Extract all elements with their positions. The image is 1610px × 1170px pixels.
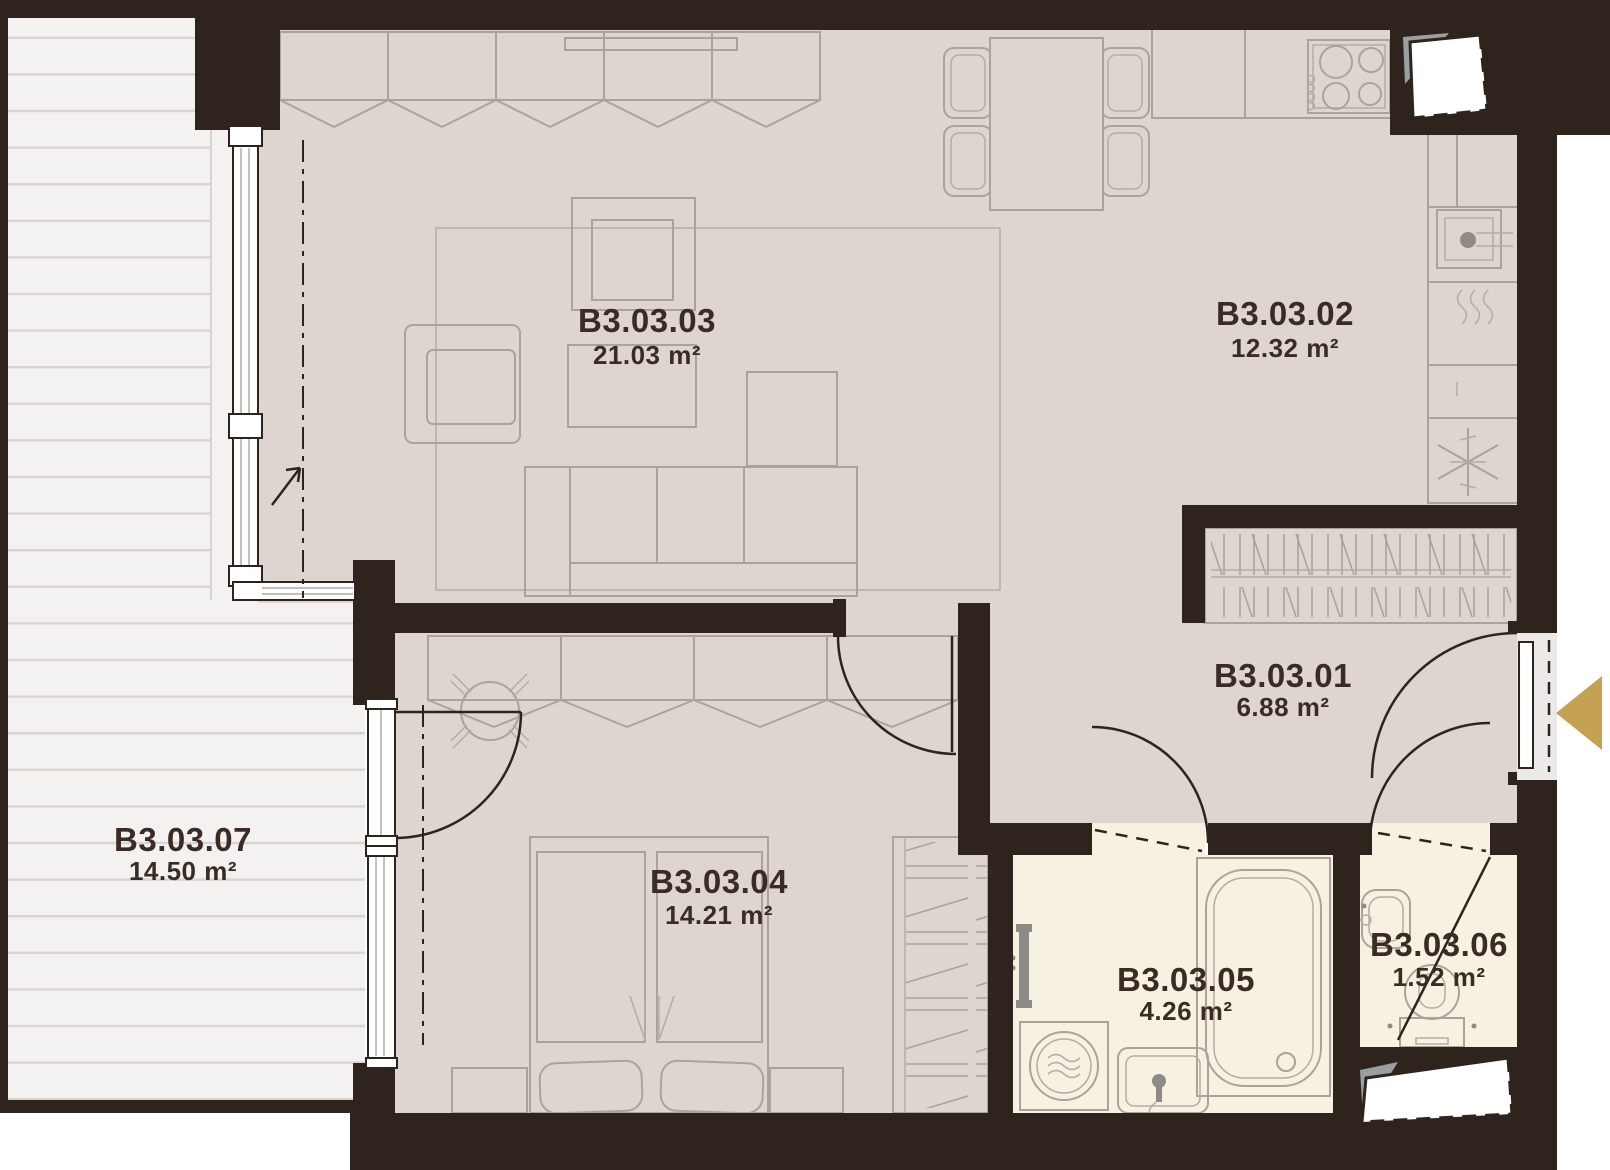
room-id: B3.03.05 — [1117, 961, 1255, 998]
room-area: 14.21 m² — [665, 900, 773, 930]
room-area: 1.52 m² — [1392, 962, 1485, 992]
bedroom-window — [366, 846, 397, 1068]
room-label-living-room: B3.03.03 21.03 m² — [578, 302, 716, 370]
bedroom-wardrobe-side — [893, 837, 988, 1113]
room-area: 6.88 m² — [1236, 692, 1329, 722]
room-id: B3.03.06 — [1370, 926, 1508, 963]
hallway-closet — [1205, 528, 1517, 623]
room-area: 21.03 m² — [593, 340, 701, 370]
room-id: B3.03.07 — [114, 821, 252, 858]
room-id: B3.03.02 — [1216, 295, 1354, 332]
dining-table — [990, 38, 1103, 210]
room-area: 12.32 m² — [1231, 333, 1339, 363]
room-id: B3.03.04 — [650, 863, 788, 900]
room-label-balcony: B3.03.07 14.50 m² — [114, 821, 252, 886]
room-id: B3.03.01 — [1214, 657, 1352, 694]
room-area: 4.26 m² — [1139, 996, 1232, 1026]
floor-plan: B3.03.01 6.88 m² B3.03.02 12.32 m² B3.03… — [0, 0, 1610, 1170]
shaft-top-right — [1403, 33, 1487, 118]
shaft-bottom-right — [1360, 1058, 1512, 1122]
room-label-bedroom: B3.03.04 14.21 m² — [650, 863, 788, 930]
floor-plan-svg: B3.03.01 6.88 m² B3.03.02 12.32 m² B3.03… — [0, 0, 1610, 1170]
room-area: 14.50 m² — [129, 856, 237, 886]
entrance-arrow-icon — [1556, 676, 1602, 750]
bedroom-balcony-door-frame — [366, 699, 397, 846]
room-label-kitchen: B3.03.02 12.32 m² — [1216, 295, 1354, 363]
room-id: B3.03.03 — [578, 302, 716, 339]
